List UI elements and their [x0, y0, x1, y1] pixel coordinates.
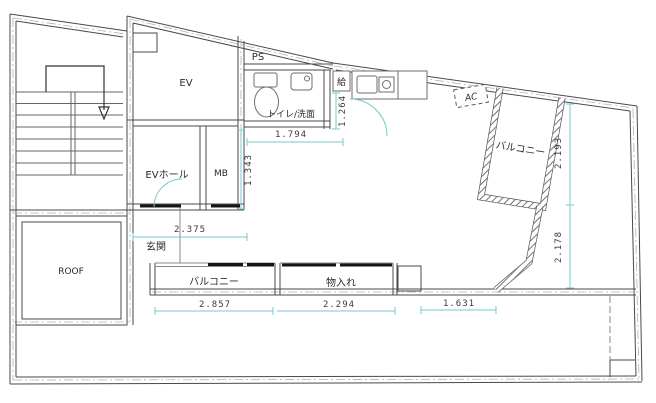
sink-icon	[291, 73, 312, 90]
label-supply: 給	[337, 76, 346, 88]
kitchen-counter	[352, 71, 427, 99]
dim-opening-width: 1.631	[443, 299, 475, 309]
room-label-ev-hall: EVホール	[145, 169, 188, 181]
dim-room-height: 2.178	[554, 231, 564, 263]
dim-hall-height: 1.343	[244, 154, 254, 186]
dim-balcony-right-height: 2.193	[554, 137, 564, 169]
room-label-toilet: トイレ/洗面	[267, 108, 315, 120]
room-label-entrance: 玄関	[146, 240, 166, 253]
room-label-balcony-bottom: バルコニー	[189, 276, 239, 288]
room-label-mb: MB	[214, 169, 228, 179]
dim-toilet-width: 1.794	[275, 130, 307, 140]
room-label-ps: PS	[252, 52, 264, 63]
closet-box	[398, 266, 421, 291]
room-label-storage: 物入れ	[326, 276, 356, 289]
floor-plan-drawing: EV PS トイレ/洗面 給 EVホール MB ROOF 玄関 バルコニー バル…	[0, 0, 656, 403]
stair-steps	[16, 92, 123, 175]
kitchen-door-arc	[350, 99, 387, 136]
corner-box	[610, 360, 635, 377]
kitchen-sink-icon	[357, 76, 377, 93]
stairs	[10, 66, 133, 216]
room-label-ev: EV	[179, 78, 192, 89]
hatched-walls	[481, 88, 562, 290]
ev-hall-door-arc	[154, 179, 182, 207]
dim-storage-width: 2.294	[323, 300, 355, 310]
openings	[140, 206, 392, 265]
diagonal-wall	[496, 206, 540, 290]
floor-plan: EV PS トイレ/洗面 給 EVホール MB ROOF 玄関 バルコニー バル…	[0, 0, 656, 403]
dim-balcony-width: 2.857	[199, 300, 231, 310]
dim-kitchen-height: 1.264	[338, 95, 348, 127]
dim-entrance-width: 2.375	[174, 225, 206, 235]
room-label-balcony-right: バルコニー	[495, 139, 546, 159]
room-label-roof: ROOF	[58, 267, 84, 277]
